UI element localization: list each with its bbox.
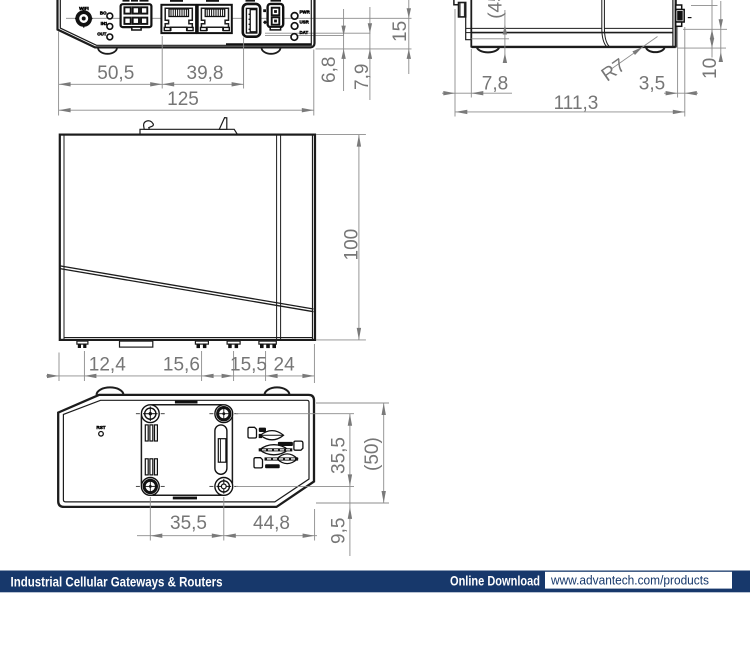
svg-text:39,8: 39,8 xyxy=(187,63,224,84)
svg-text:3,5: 3,5 xyxy=(639,74,665,95)
svg-text:Industrial Cellular Gateways &: Industrial Cellular Gateways & Routers xyxy=(11,575,223,590)
svg-text:PWR: PWR xyxy=(300,9,311,14)
svg-text:www.advantech.com/products: www.advantech.com/products xyxy=(550,574,709,588)
svg-text:15,6: 15,6 xyxy=(163,355,200,376)
svg-text:111,3: 111,3 xyxy=(554,93,599,114)
svg-text:35,5: 35,5 xyxy=(170,513,207,534)
svg-text:125: 125 xyxy=(167,89,199,110)
svg-text:15: 15 xyxy=(390,21,411,42)
svg-text:12,4: 12,4 xyxy=(89,355,126,376)
svg-text:10: 10 xyxy=(700,58,721,79)
svg-text:USR: USR xyxy=(300,20,310,25)
svg-text:24: 24 xyxy=(274,355,296,376)
svg-text:(50): (50) xyxy=(362,437,383,471)
svg-text:RST: RST xyxy=(96,425,105,430)
svg-text:BO: BO xyxy=(100,10,107,15)
svg-text:9,5: 9,5 xyxy=(329,518,350,544)
svg-text:OUT: OUT xyxy=(97,31,107,36)
svg-text:6,8: 6,8 xyxy=(319,57,340,83)
svg-text:50,5: 50,5 xyxy=(97,63,134,84)
svg-text:7,8: 7,8 xyxy=(482,74,508,95)
svg-text:Online Download: Online Download xyxy=(450,574,540,589)
svg-text:35,5: 35,5 xyxy=(329,437,350,474)
svg-text:(45): (45) xyxy=(486,0,507,19)
svg-text:DAT: DAT xyxy=(300,30,309,35)
svg-text:15,5: 15,5 xyxy=(230,355,267,376)
svg-text:100: 100 xyxy=(342,229,363,261)
svg-text:7,9: 7,9 xyxy=(352,64,373,90)
svg-text:44,8: 44,8 xyxy=(253,513,290,534)
